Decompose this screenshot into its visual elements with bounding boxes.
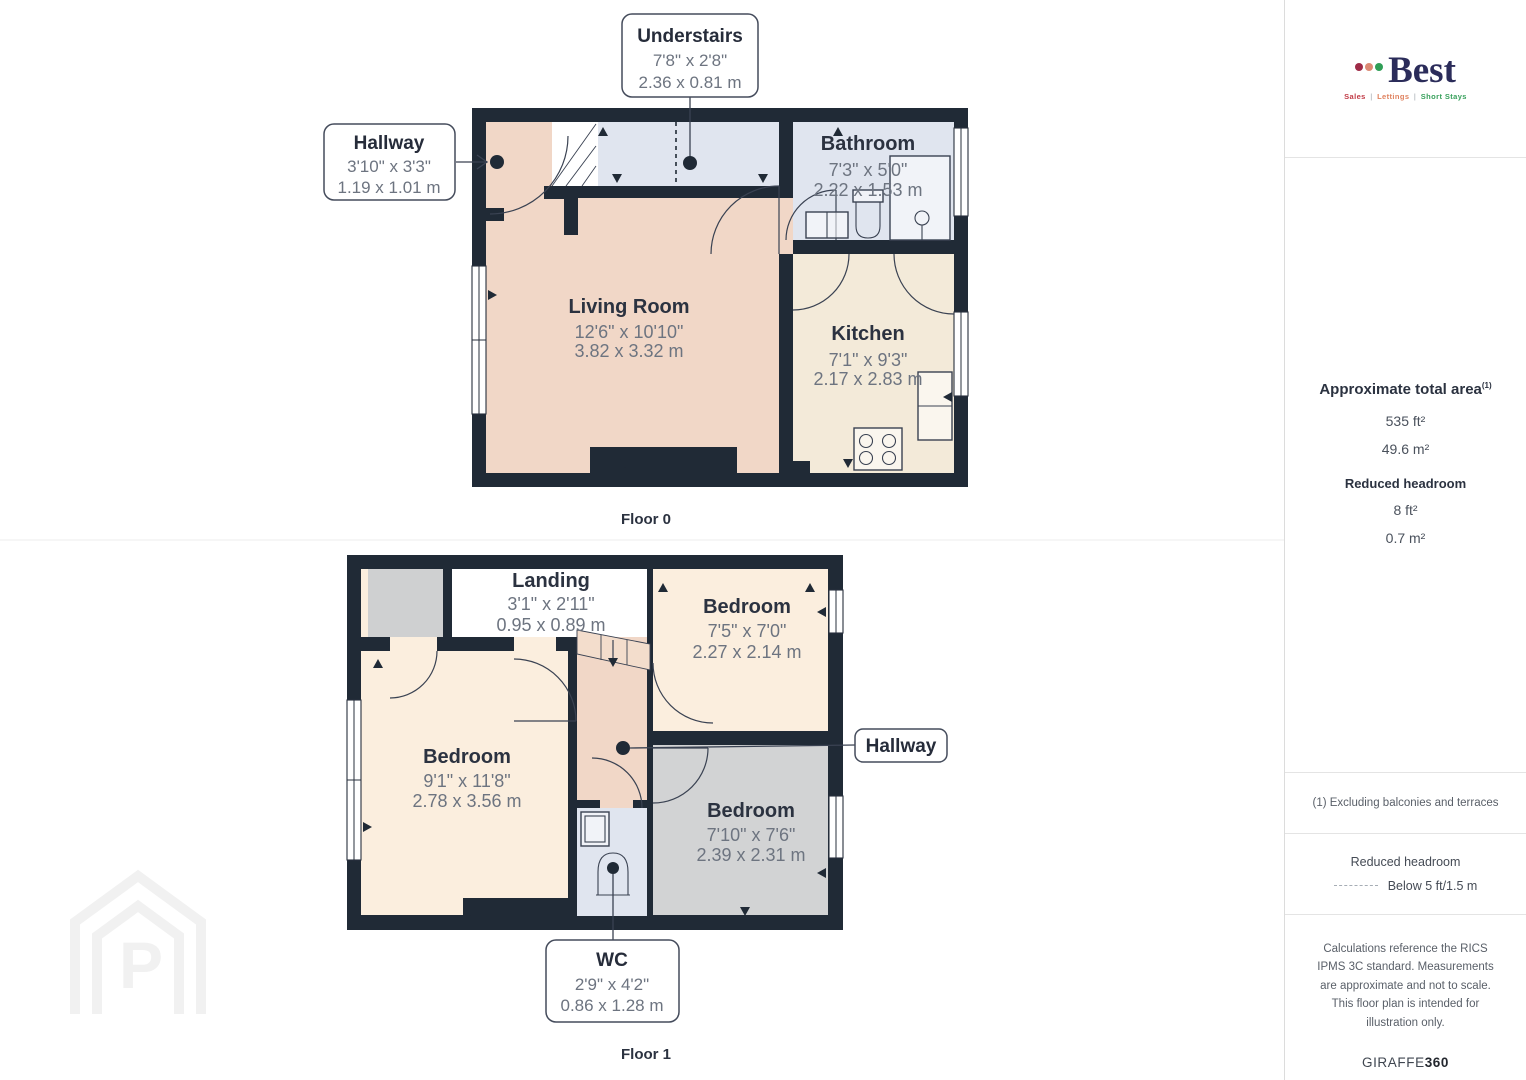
bedroom-bottom-right-name: Bedroom — [707, 800, 795, 822]
understairs-dot — [683, 156, 697, 170]
legend-section: Reduced headroom Below 5 ft/1.5 m — [1285, 833, 1526, 915]
wc-imperial: 2'9" x 4'2" — [575, 975, 649, 994]
bedroom-left-imperial: 9'1" x 11'8" — [423, 771, 510, 791]
watermark-letter: P — [119, 928, 163, 1002]
bedroom-left-name: Bedroom — [423, 746, 511, 768]
floor0-plan: Bathroom 7'3" x 5'0" 2.22 x 1.53 m Livin… — [324, 14, 968, 528]
understairs-name: Understairs — [637, 26, 743, 47]
living-room-imperial: 12'6" x 10'10" — [575, 322, 684, 342]
bedroom-left-metric: 2.78 x 3.56 m — [412, 791, 521, 811]
kitchen-name: Kitchen — [831, 323, 904, 345]
bedroom-left-label: Bedroom 9'1" x 11'8" 2.78 x 3.56 m — [412, 746, 521, 811]
reduced-headroom-title: Reduced headroom — [1285, 476, 1526, 491]
floor1-caption: Floor 1 — [621, 1046, 671, 1063]
disclaimer-section: Calculations reference the RICS IPMS 3C … — [1285, 914, 1526, 1074]
area-title: Approximate total area(1) — [1285, 381, 1526, 398]
floor1-plan: Landing 3'1" x 2'11" 0.95 x 0.89 m Bedro… — [347, 555, 947, 1063]
logo-wordmark: Best — [1388, 52, 1456, 89]
area-title-text: Approximate total area — [1319, 381, 1482, 398]
bedroom-bottom-right-imperial: 7'10" x 7'6" — [707, 825, 796, 845]
kitchen-imperial: 7'1" x 9'3" — [829, 350, 908, 370]
understairs-metric: 2.36 x 0.81 m — [638, 73, 741, 92]
total-area-imperial: 535 ft² — [1285, 411, 1526, 432]
living-room-label: Living Room 12'6" x 10'10" 3.82 x 3.32 m — [568, 296, 689, 361]
area-title-footnote: (1) — [1482, 381, 1492, 390]
legend-title: Reduced headroom — [1351, 855, 1461, 869]
bedroom-top-right-name: Bedroom — [703, 596, 791, 618]
landing-name: Landing — [512, 570, 590, 592]
landing-imperial: 3'1" x 2'11" — [507, 594, 594, 614]
living-room-metric: 3.82 x 3.32 m — [574, 341, 683, 361]
hallway0-imperial: 3'10" x 3'3" — [347, 157, 431, 176]
floor0-caption: Floor 0 — [621, 511, 671, 528]
giraffe-brand-text: GIRAFFE — [1362, 1055, 1425, 1070]
logo-dots-icon — [1355, 63, 1383, 71]
closet-wall — [443, 569, 452, 637]
info-sidebar: Best Sales | Lettings | Short Stays Appr… — [1284, 0, 1526, 1080]
hallway1-dot — [616, 741, 630, 755]
hallway0-dot — [490, 155, 504, 169]
wc-dot — [607, 862, 619, 874]
wc-name: WC — [596, 950, 628, 971]
giraffe360-brand: GIRAFFE360 — [1310, 1052, 1501, 1074]
legend-value: Below 5 ft/1.5 m — [1388, 879, 1478, 893]
wc-metric: 0.86 x 1.28 m — [560, 996, 663, 1015]
exclusion-note: (1) Excluding balconies and terraces — [1285, 772, 1526, 834]
bathroom-metric: 2.22 x 1.53 m — [813, 180, 922, 200]
tagline-lettings: Lettings — [1377, 92, 1409, 101]
watermark-logo: P — [75, 876, 201, 1014]
bedroom-bottom-right-label: Bedroom 7'10" x 7'6" 2.39 x 2.31 m — [696, 800, 805, 865]
room-closet — [368, 569, 443, 637]
tagline-separator: | — [1370, 92, 1372, 101]
reduced-headroom-metric: 0.7 m² — [1285, 528, 1526, 549]
bathroom-name: Bathroom — [821, 133, 915, 155]
dashed-line-icon — [1334, 885, 1378, 886]
disclaimer-text: Calculations reference the RICS IPMS 3C … — [1310, 940, 1501, 1032]
floorplan-canvas: P — [0, 0, 1284, 1080]
bathroom-imperial: 7'3" x 5'0" — [829, 160, 908, 180]
giraffe-brand-suffix: 360 — [1425, 1055, 1449, 1070]
exclusion-note-text: (1) Excluding balconies and terraces — [1312, 797, 1498, 809]
room-understairs — [598, 122, 779, 186]
agency-logo-section: Best Sales | Lettings | Short Stays — [1285, 0, 1526, 158]
bedroom-bottom-right-metric: 2.39 x 2.31 m — [696, 845, 805, 865]
bathroom-label: Bathroom 7'3" x 5'0" 2.22 x 1.53 m — [813, 133, 922, 200]
legend-row: Below 5 ft/1.5 m — [1334, 879, 1478, 893]
area-summary-section: Approximate total area(1) 535 ft² 49.6 m… — [1285, 381, 1526, 556]
logo-tagline: Sales | Lettings | Short Stays — [1285, 92, 1526, 101]
hallway1-callout: Hallway — [855, 729, 947, 762]
wc-callout: WC 2'9" x 4'2" 0.86 x 1.28 m — [546, 940, 679, 1022]
landing-metric: 0.95 x 0.89 m — [496, 615, 605, 635]
living-room-name: Living Room — [568, 296, 689, 318]
tagline-sales: Sales — [1344, 92, 1366, 101]
hallway0-metric: 1.19 x 1.01 m — [337, 178, 440, 197]
tagline-separator: | — [1414, 92, 1416, 101]
hallway0-callout: Hallway 3'10" x 3'3" 1.19 x 1.01 m — [324, 124, 455, 200]
floorplan-page: P — [0, 0, 1526, 1080]
understairs-callout: Understairs 7'8" x 2'8" 2.36 x 0.81 m — [622, 14, 758, 97]
total-area-metric: 49.6 m² — [1285, 439, 1526, 460]
reduced-headroom-imperial: 8 ft² — [1285, 500, 1526, 521]
agency-logo: Best — [1285, 52, 1526, 89]
hallway1-name: Hallway — [866, 736, 937, 757]
bedroom-top-right-label: Bedroom 7'5" x 7'0" 2.27 x 2.14 m — [692, 596, 801, 662]
bedroom-top-right-imperial: 7'5" x 7'0" — [708, 621, 787, 641]
tagline-short-stays: Short Stays — [1421, 92, 1467, 101]
landing-label: Landing 3'1" x 2'11" 0.95 x 0.89 m — [496, 570, 605, 635]
hallway0-name: Hallway — [354, 133, 425, 154]
understairs-imperial: 7'8" x 2'8" — [653, 51, 727, 70]
bedroom-top-right-metric: 2.27 x 2.14 m — [692, 642, 801, 662]
kitchen-metric: 2.17 x 2.83 m — [813, 369, 922, 389]
